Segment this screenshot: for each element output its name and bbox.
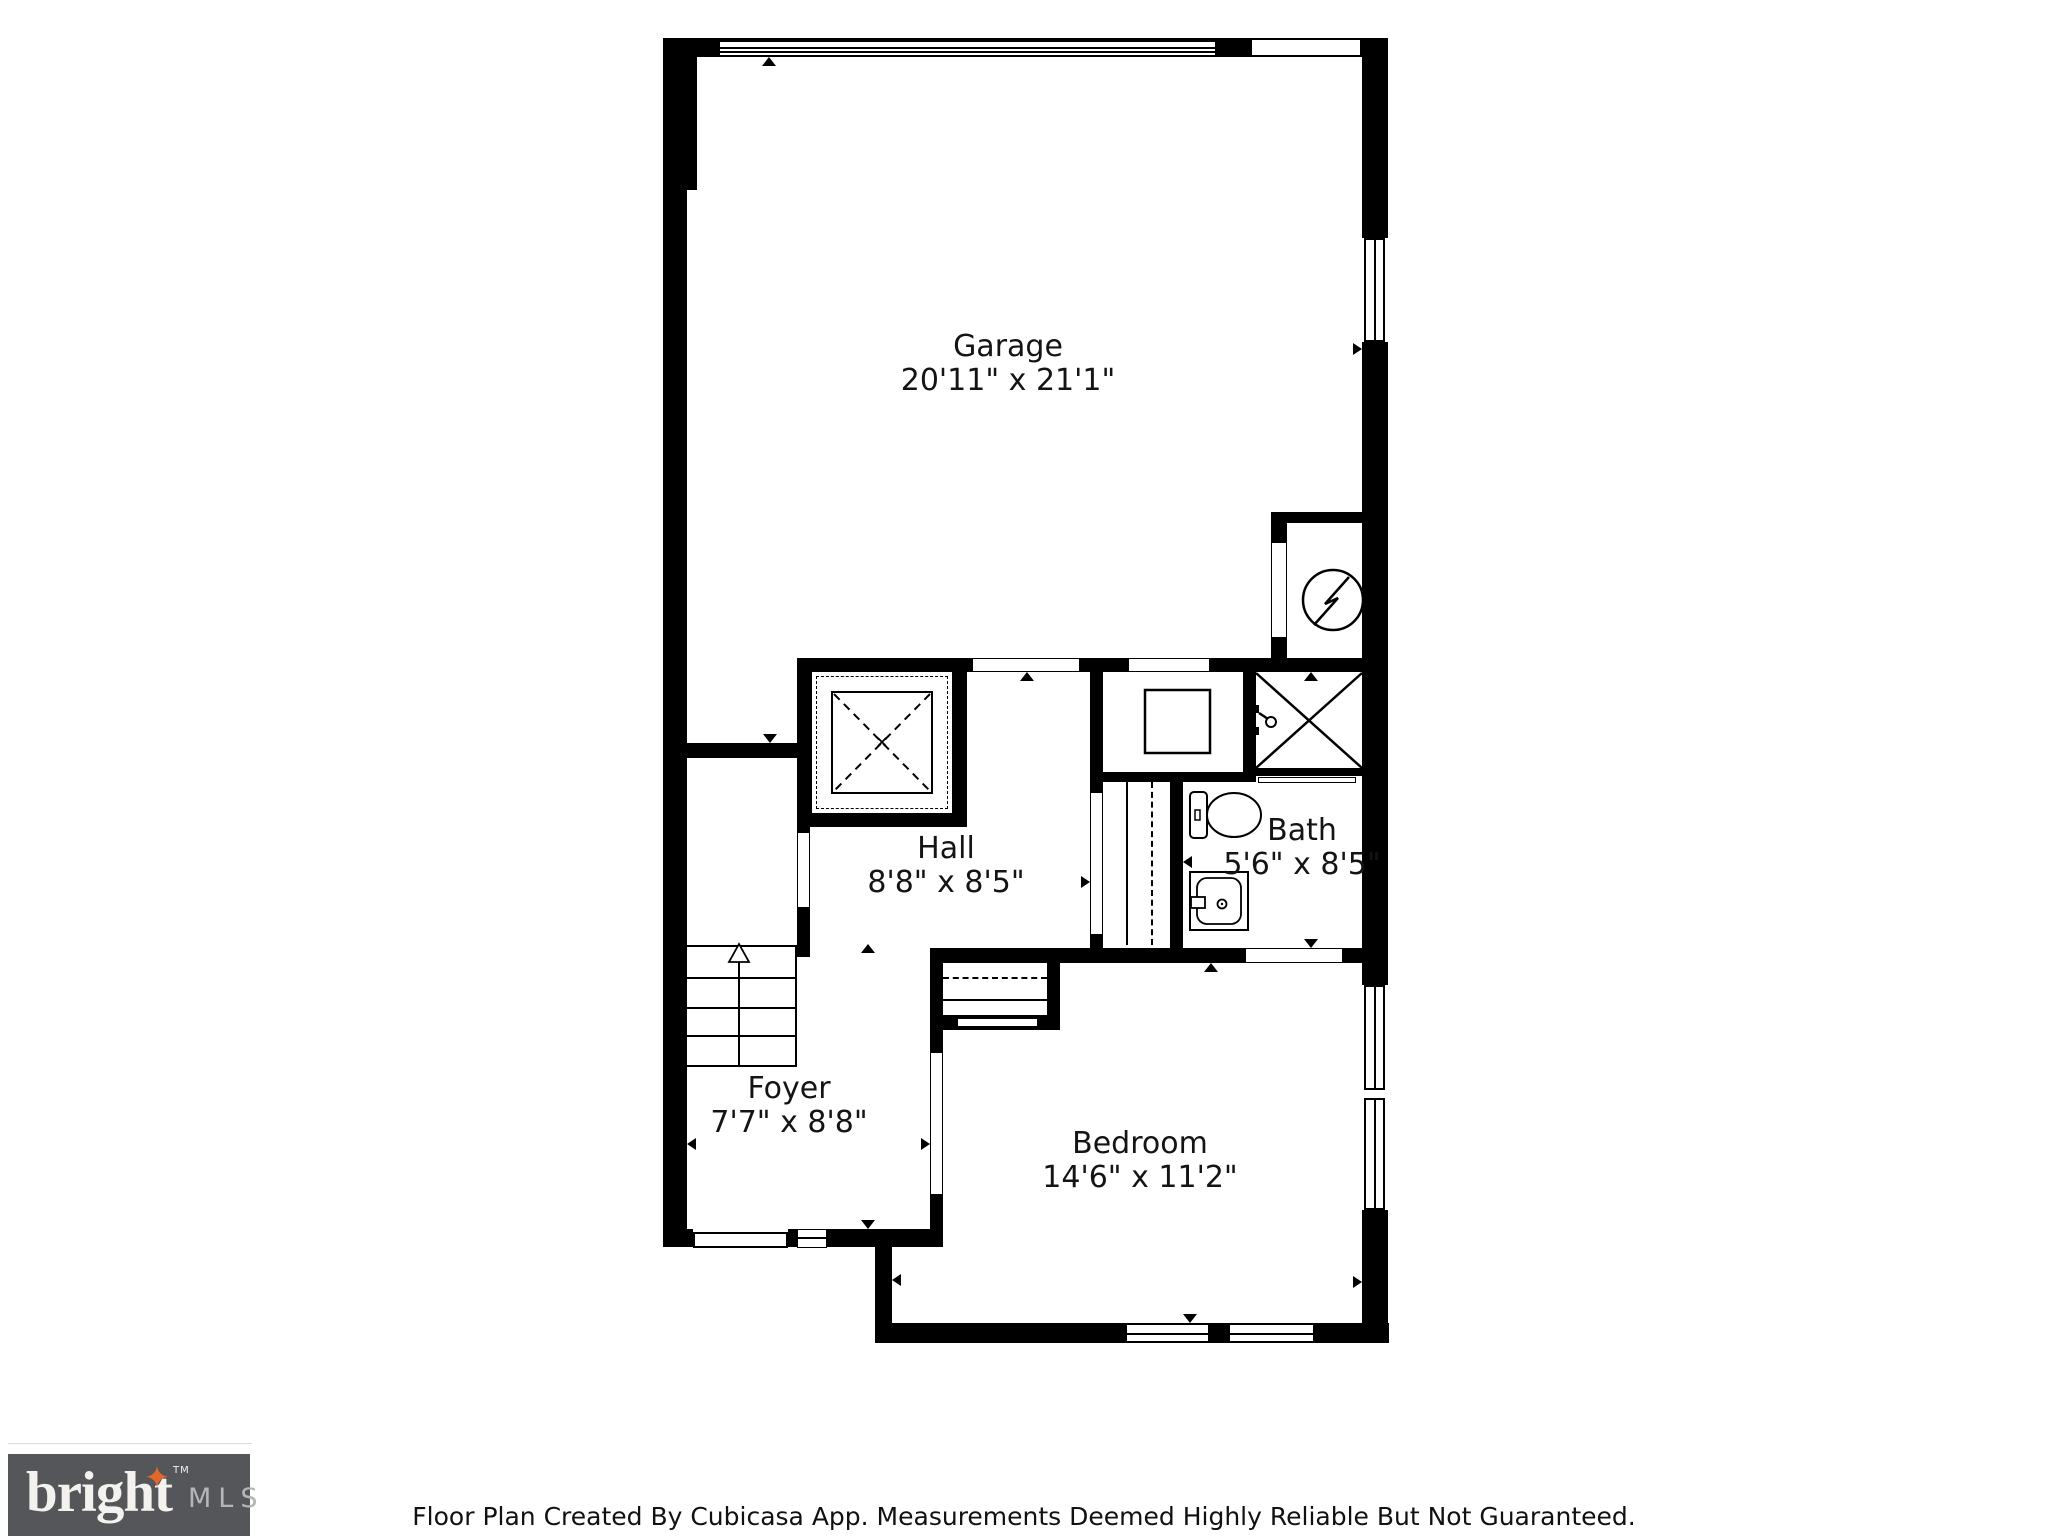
washer-box-icon — [1145, 690, 1210, 753]
shower-door-handle — [1250, 705, 1276, 735]
stairs-up-arrow-icon — [729, 944, 749, 1065]
room-name: Bath — [1223, 814, 1380, 848]
electrical-panel-lightning-icon — [1303, 570, 1363, 630]
marker-foyer-divider — [763, 734, 777, 743]
room-dims: 14'6" x 11'2" — [1042, 1161, 1237, 1195]
marker-bedroom-right — [1353, 1276, 1362, 1288]
hall-label: Hall 8'8" x 8'5" — [867, 832, 1024, 900]
foyer-label: Foyer 7'7" x 8'8" — [710, 1072, 867, 1140]
logo-star-icon: ✦ — [144, 1460, 170, 1496]
marker-foyer-left — [687, 1138, 696, 1150]
floor-plan-page: Garage 20'11" x 21'1" Hall 8'8" x 8'5" B… — [0, 0, 2048, 1536]
room-name: Bedroom — [1042, 1127, 1237, 1161]
marker-garage-right — [1353, 343, 1362, 355]
marker-bath-left — [1183, 856, 1192, 868]
marker-hall-right — [1081, 876, 1090, 888]
room-name: Hall — [867, 832, 1024, 866]
marker-shower — [1304, 672, 1318, 681]
room-dims: 20'11" x 21'1" — [901, 364, 1116, 398]
room-dims: 7'7" x 8'8" — [710, 1106, 867, 1140]
marker-garage-door — [762, 57, 776, 66]
bedroom-label: Bedroom 14'6" x 11'2" — [1042, 1127, 1237, 1195]
room-name: Foyer — [710, 1072, 867, 1106]
marker-bath-door — [1304, 939, 1318, 948]
marker-bedroom-top — [1204, 963, 1218, 972]
bright-mls-logo: bright ✦ TM MLS — [8, 1454, 250, 1536]
room-name: Garage — [901, 330, 1116, 364]
marker-front-door — [861, 1220, 875, 1229]
marker-bedroom-nook — [892, 1274, 901, 1286]
disclaimer-text: Floor Plan Created By Cubicasa App. Meas… — [0, 1502, 2048, 1531]
logo-tm-text: TM — [173, 1465, 190, 1476]
logo-mls-text: MLS — [188, 1483, 264, 1514]
bath-label: Bath 5'6" x 8'5" — [1223, 814, 1380, 882]
marker-bedroom-window — [1183, 1314, 1197, 1323]
room-dims: 5'6" x 8'5" — [1223, 848, 1380, 882]
garage-label: Garage 20'11" x 21'1" — [901, 330, 1116, 398]
marker-hall-door — [1020, 672, 1034, 681]
marker-foyer-hall — [861, 944, 875, 953]
room-dims: 8'8" x 8'5" — [867, 866, 1024, 900]
marker-garage-left — [678, 346, 687, 358]
logo-divider — [8, 1443, 252, 1444]
fixtures-layer — [0, 0, 2048, 1536]
marker-foyer-right — [921, 1138, 930, 1150]
